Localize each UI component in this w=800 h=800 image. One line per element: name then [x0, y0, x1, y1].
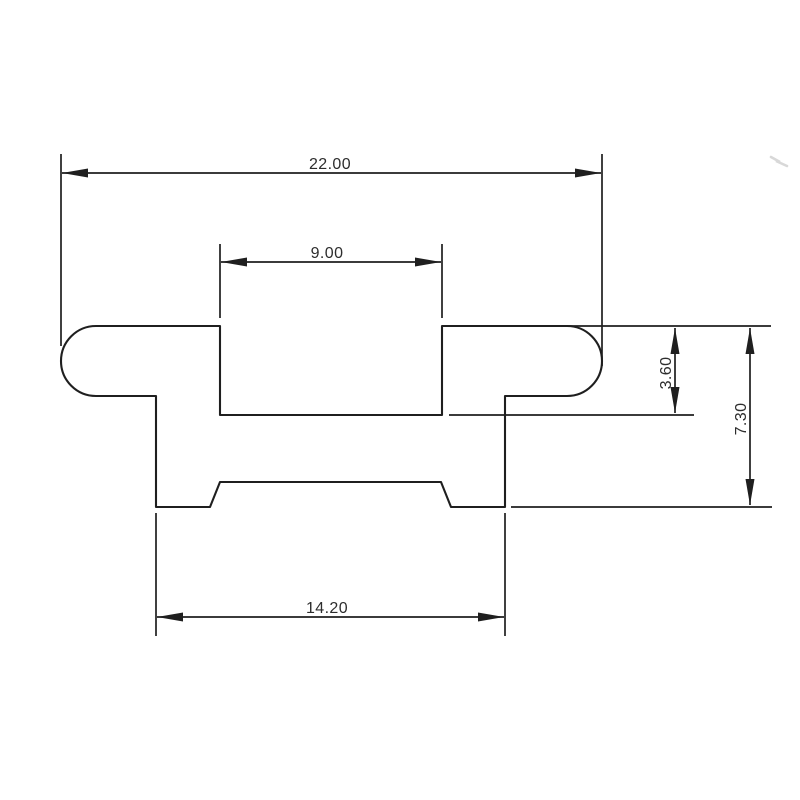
smudge-artifact	[771, 157, 787, 166]
arrowhead-right-icon	[478, 613, 504, 622]
arrowhead-right-icon	[415, 258, 441, 267]
arrowhead-left-icon	[157, 613, 183, 622]
profile-outline	[61, 326, 602, 507]
dimension-label-overall-width: 22.00	[309, 156, 351, 173]
dimension-label-slot-depth: 3.60	[658, 357, 675, 390]
arrowhead-up-icon	[671, 328, 680, 354]
dimension-label-base-width: 14.20	[306, 600, 348, 617]
dimension-base-width: 14.20	[156, 513, 505, 636]
drawing-canvas: 22.00 9.00 3.60	[0, 0, 800, 800]
arrowhead-left-icon	[221, 258, 247, 267]
arrowhead-down-icon	[746, 479, 755, 505]
dimension-label-slot-width: 9.00	[311, 245, 344, 262]
dimension-slot-width: 9.00	[220, 244, 442, 318]
dimension-label-total-height: 7.30	[733, 403, 750, 436]
arrowhead-down-icon	[671, 387, 680, 413]
arrowhead-left-icon	[62, 169, 88, 178]
technical-drawing-svg: 22.00 9.00 3.60	[0, 0, 800, 800]
arrowhead-up-icon	[746, 328, 755, 354]
arrowhead-right-icon	[575, 169, 601, 178]
dimension-slot-depth: 3.60	[449, 326, 771, 415]
dimension-total-height: 7.30	[511, 328, 772, 507]
